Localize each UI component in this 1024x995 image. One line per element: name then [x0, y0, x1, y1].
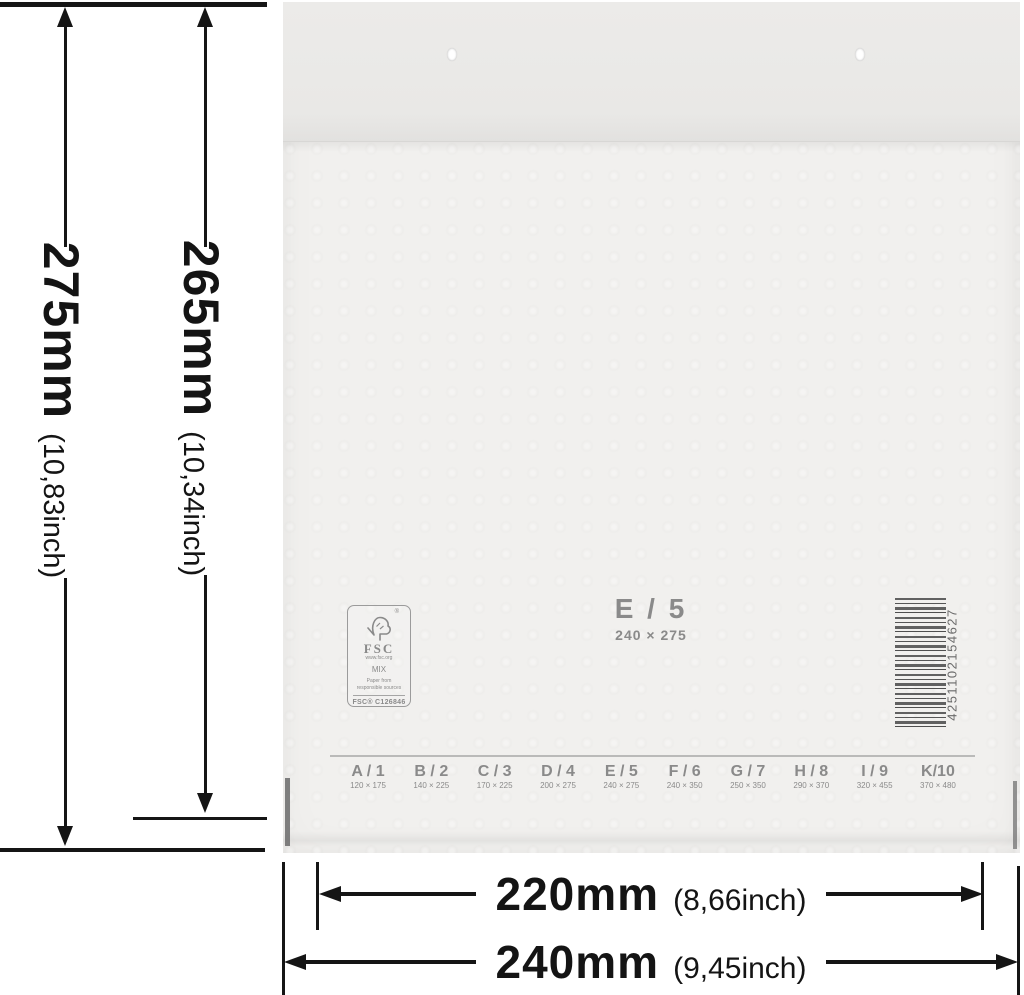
flap-fold-shadow — [283, 142, 1020, 152]
arrowhead-down-icon — [57, 826, 73, 846]
size-chart-item: C / 3 170 × 225 — [470, 763, 520, 790]
extension-line-top — [0, 2, 267, 7]
hang-hole-right-icon — [855, 48, 865, 61]
size-code: E / 5 — [571, 595, 731, 623]
fsc-grade: MIX — [372, 666, 386, 674]
dimension-line — [826, 960, 996, 964]
size-chart-item: G / 7 250 × 350 — [723, 763, 773, 790]
side-seam-right — [1013, 781, 1017, 849]
barcode-number: 4251102154627 — [945, 599, 960, 731]
bubble-texture — [283, 142, 1020, 853]
arrowhead-right-icon — [996, 954, 1018, 970]
size-chart-item: K/10 370 × 480 — [913, 763, 963, 790]
fsc-brand: FSC — [364, 642, 395, 655]
dimension-line-inner-height — [204, 25, 207, 247]
inner-width-label: 220mm (8,66inch) — [476, 867, 827, 921]
size-chart-rule — [330, 755, 975, 757]
outer-height-label: 275mm (10,83inch) — [26, 235, 90, 585]
arrowhead-right-icon — [961, 886, 983, 902]
dimension-line-inner-height — [204, 575, 207, 795]
product-dimension-diagram: E / 5 240 × 275 ® FSC www.fsc.org MIX Pa… — [0, 0, 1024, 995]
dimension-line — [341, 892, 476, 896]
arrowhead-up-icon — [57, 7, 73, 27]
envelope-flap — [283, 2, 1020, 142]
extension-line-bottom-inner — [133, 817, 267, 820]
fsc-certification-label: ® FSC www.fsc.org MIX Paper from respons… — [347, 605, 411, 707]
barcode-icon — [895, 598, 946, 730]
inner-width-dimension: 220mm (8,66inch) — [319, 867, 983, 921]
bubble-mailer-envelope: E / 5 240 × 275 ® FSC www.fsc.org MIX Pa… — [283, 2, 1020, 853]
dimension-line — [826, 892, 961, 896]
size-chart-item: B / 2 140 × 225 — [406, 763, 456, 790]
size-chart: A / 1 120 × 175 B / 2 140 × 225 C / 3 17… — [343, 763, 963, 790]
side-seam-left — [285, 778, 290, 846]
outer-width-label: 240mm (9,45inch) — [476, 935, 827, 989]
size-chart-item: F / 6 240 × 350 — [660, 763, 710, 790]
size-mm: 240 × 275 — [571, 627, 731, 643]
size-chart-item: A / 1 120 × 175 — [343, 763, 393, 790]
fsc-url: www.fsc.org — [366, 655, 393, 661]
arrowhead-left-icon — [284, 954, 306, 970]
envelope-size-print: E / 5 240 × 275 — [571, 595, 731, 643]
dimension-line-outer-height — [64, 25, 67, 247]
arrowhead-up-icon — [197, 7, 213, 27]
arrowhead-down-icon — [197, 793, 213, 813]
dimension-line — [306, 960, 476, 964]
inner-height-label: 265mm (10,34inch) — [166, 238, 230, 578]
dimension-line-outer-height — [64, 578, 67, 828]
fsc-tree-icon: ® — [365, 611, 393, 641]
size-chart-item: H / 8 290 × 370 — [786, 763, 836, 790]
fsc-license: FSC® C126846 — [352, 699, 405, 706]
size-chart-item: I / 9 320 × 455 — [850, 763, 900, 790]
size-chart-item: D / 4 200 × 275 — [533, 763, 583, 790]
outer-width-dimension: 240mm (9,45inch) — [284, 935, 1018, 989]
size-chart-item: E / 5 240 × 275 — [596, 763, 646, 790]
extension-line-bottom-outer — [0, 848, 265, 852]
registered-mark: ® — [395, 609, 399, 615]
arrowhead-left-icon — [319, 886, 341, 902]
hang-hole-left-icon — [447, 48, 457, 61]
fsc-divider — [353, 695, 405, 696]
fsc-tagline: Paper from responsible sources — [357, 678, 401, 691]
bottom-crease — [283, 831, 1020, 847]
